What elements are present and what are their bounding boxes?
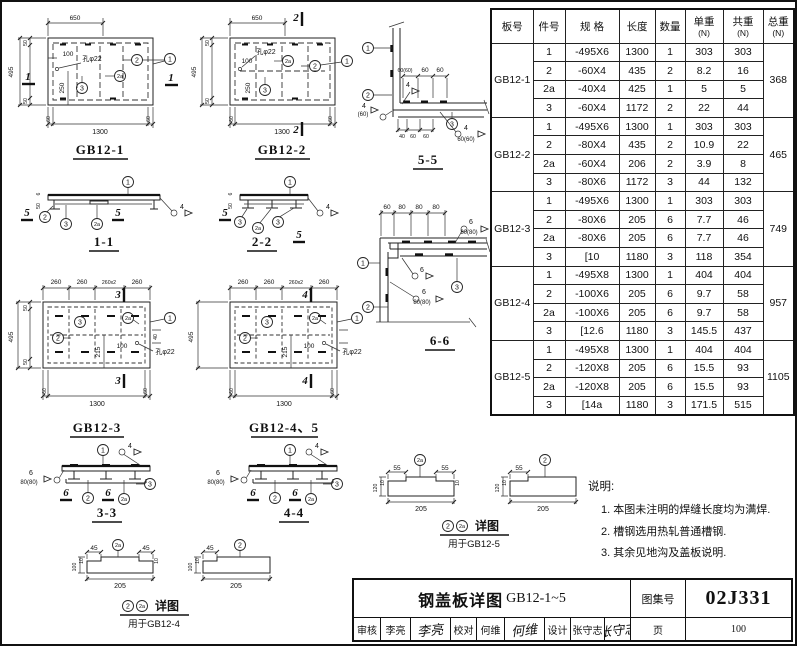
reviewer-label: 审核 bbox=[354, 618, 380, 640]
svg-text:215: 215 bbox=[95, 346, 102, 357]
svg-text:60: 60 bbox=[423, 134, 429, 140]
weld-mark: 680(80) bbox=[455, 219, 488, 243]
fig-6-6: 60 80 80 80 680(80) 6 680(80) 1 2 3 6-6 bbox=[358, 204, 491, 350]
part-bubble: 3 bbox=[235, 209, 248, 228]
svg-text:2a: 2a bbox=[255, 226, 261, 232]
svg-text:1: 1 bbox=[168, 72, 174, 84]
svg-text:2a: 2a bbox=[312, 316, 318, 322]
svg-text:55: 55 bbox=[515, 465, 523, 472]
part-bubble: 2 bbox=[540, 455, 551, 478]
svg-text:3: 3 bbox=[114, 289, 121, 301]
figure-title: 4-4 bbox=[284, 505, 304, 520]
hole-label: 孔φ22 bbox=[342, 348, 361, 356]
svg-text:2a: 2a bbox=[285, 59, 291, 65]
part-bubble: 3 bbox=[323, 479, 343, 490]
svg-text:2a: 2a bbox=[115, 543, 121, 549]
table-row: GB12-21-495X613001303303465 bbox=[491, 117, 794, 136]
svg-text:2: 2 bbox=[366, 305, 370, 312]
svg-text:1: 1 bbox=[168, 57, 172, 64]
svg-text:6: 6 bbox=[36, 192, 42, 195]
part-bubble: 2a bbox=[415, 455, 426, 478]
col-header: 共重(N) bbox=[723, 9, 763, 43]
designer-label: 设计 bbox=[544, 618, 570, 640]
svg-text:1: 1 bbox=[101, 448, 105, 455]
table-row: 2-80X620567.746 bbox=[491, 210, 794, 229]
svg-text:650: 650 bbox=[252, 15, 263, 22]
svg-text:10: 10 bbox=[154, 558, 160, 564]
weld-mark: 4 bbox=[402, 82, 419, 104]
fig-gb12-3-plan: 260 260 260x2 260 495 50 50 40 215 100 孔… bbox=[8, 279, 176, 437]
svg-text:用于GB12-4: 用于GB12-4 bbox=[128, 619, 180, 630]
svg-text:495: 495 bbox=[188, 331, 195, 342]
part-bubble: 1 bbox=[358, 258, 381, 269]
section-mark-1: 1 bbox=[165, 72, 178, 85]
svg-text:5: 5 bbox=[296, 229, 302, 241]
svg-text:5: 5 bbox=[24, 207, 30, 219]
svg-text:4: 4 bbox=[301, 375, 308, 387]
part-bubble: 2 bbox=[270, 480, 281, 504]
part-bubble: 2a bbox=[274, 56, 294, 67]
svg-text:3: 3 bbox=[265, 320, 269, 327]
table-row: 2a-60X420623.98 bbox=[491, 155, 794, 174]
svg-text:1300: 1300 bbox=[92, 129, 108, 136]
weld-mark: 4 bbox=[306, 443, 328, 465]
part-bubble: 1 bbox=[285, 177, 296, 195]
figure-title: 3-3 bbox=[97, 505, 117, 520]
svg-text:5: 5 bbox=[115, 207, 121, 219]
weld-mark: 4 bbox=[308, 198, 338, 216]
svg-text:100: 100 bbox=[117, 343, 128, 350]
svg-text:4: 4 bbox=[315, 443, 319, 450]
section-mark-5: 5 bbox=[112, 207, 124, 220]
table-row: 2-80X4435210.922 bbox=[491, 136, 794, 155]
part-bubble: 3 bbox=[136, 479, 156, 490]
svg-text:205: 205 bbox=[415, 506, 427, 513]
svg-text:4: 4 bbox=[362, 103, 366, 110]
part-bubble: 2a bbox=[119, 480, 130, 505]
svg-text:80(80): 80(80) bbox=[20, 480, 37, 486]
part-bubble: 3 bbox=[61, 205, 72, 230]
svg-text:1: 1 bbox=[355, 316, 359, 323]
svg-text:50: 50 bbox=[23, 305, 29, 311]
detail-caption: 2 2a 详图 用于GB12-4 bbox=[120, 598, 189, 630]
svg-text:60: 60 bbox=[46, 116, 52, 122]
col-header: 板号 bbox=[491, 9, 533, 43]
svg-text:详图: 详图 bbox=[475, 518, 499, 533]
svg-text:用于GB12-5: 用于GB12-5 bbox=[448, 539, 500, 550]
weld-mark: 4 bbox=[119, 443, 141, 465]
designer-name: 张守志 bbox=[570, 618, 604, 640]
section-mark-4: 4 bbox=[301, 374, 311, 388]
part-bubble: 1 bbox=[342, 56, 353, 67]
svg-text:6: 6 bbox=[250, 487, 256, 499]
svg-text:120: 120 bbox=[373, 484, 379, 493]
svg-text:2a: 2a bbox=[94, 222, 100, 228]
part-bubble: 1 bbox=[285, 445, 296, 465]
part-bubble: 2 bbox=[235, 540, 246, 558]
svg-text:60: 60 bbox=[328, 116, 334, 122]
svg-text:1300: 1300 bbox=[274, 129, 290, 136]
section-mark-5: 5 bbox=[293, 229, 305, 242]
svg-text:80(80): 80(80) bbox=[460, 230, 477, 236]
part-bubble: 2 bbox=[123, 55, 165, 66]
table-row: 2-120X8205615.593 bbox=[491, 359, 794, 378]
svg-text:3: 3 bbox=[238, 220, 242, 227]
section-mark-6: 6 bbox=[60, 487, 72, 500]
table-row: GB12-11-495X613001303303368 bbox=[491, 43, 794, 62]
svg-text:215: 215 bbox=[282, 346, 289, 357]
note-item: 1. 本图未注明的焊缝长度均为满焊. bbox=[588, 500, 790, 521]
svg-text:2: 2 bbox=[56, 336, 60, 343]
figure-title: GB12-2 bbox=[258, 142, 307, 157]
part-bubble: 2 bbox=[83, 480, 94, 504]
note-item: 3. 其余见地沟及盖板说明. bbox=[588, 543, 790, 564]
svg-text:80(80): 80(80) bbox=[413, 300, 430, 306]
page-number: 100 bbox=[685, 618, 791, 640]
part-bubble: 2a bbox=[113, 540, 124, 558]
atlas-number: 02J331 bbox=[685, 580, 791, 617]
part-bubble: 2a bbox=[123, 313, 140, 325]
svg-text:45: 45 bbox=[206, 545, 214, 552]
svg-text:4: 4 bbox=[406, 82, 410, 89]
section-mark-6: 6 bbox=[247, 487, 259, 500]
svg-text:495: 495 bbox=[8, 66, 15, 77]
figure-title: GB12-1 bbox=[76, 142, 125, 157]
svg-text:60: 60 bbox=[146, 116, 152, 122]
title-block: 钢盖板详图GB12-1~5 图集号 02J331 审核 李亮 李亮 校对 何维 … bbox=[352, 578, 793, 642]
sheet-title: 钢盖板详图GB12-1~5 bbox=[354, 580, 630, 617]
svg-text:260x2: 260x2 bbox=[289, 280, 303, 286]
table-row: 2a-100X620569.758 bbox=[491, 303, 794, 322]
part-bubble: 2 bbox=[363, 90, 393, 101]
svg-text:60: 60 bbox=[143, 388, 149, 394]
svg-text:3: 3 bbox=[455, 285, 459, 292]
svg-text:80(80): 80(80) bbox=[207, 480, 224, 486]
fig-1-1: 6 50 1 2 3 2a 5 5 4 1-1 bbox=[21, 177, 192, 252]
table-row: 2a-40X4425155 bbox=[491, 80, 794, 99]
svg-text:50: 50 bbox=[23, 98, 29, 104]
fig-3-3: 680(80) 1 4 6 6 2 2a 3 3-3 bbox=[20, 443, 155, 522]
checker-label: 校对 bbox=[450, 618, 476, 640]
checker-name: 何维 bbox=[476, 618, 504, 640]
figure-title: 2-2 bbox=[252, 234, 272, 249]
col-header: 数量 bbox=[655, 9, 685, 43]
svg-text:3: 3 bbox=[276, 220, 280, 227]
part-bubble: 2 bbox=[240, 333, 259, 344]
svg-text:2: 2 bbox=[43, 215, 47, 222]
svg-text:260: 260 bbox=[264, 279, 275, 286]
svg-text:6: 6 bbox=[292, 487, 298, 499]
part-bubble: 2a bbox=[306, 480, 317, 505]
svg-text:6: 6 bbox=[422, 289, 426, 296]
notes-block: 说明: 1. 本图未注明的焊缝长度均为满焊. 2. 槽钢选用热轧普通槽钢. 3.… bbox=[588, 476, 790, 565]
svg-text:260x2: 260x2 bbox=[102, 280, 116, 286]
hole-label: 孔φ22 bbox=[256, 48, 275, 56]
page-label: 页 bbox=[630, 618, 685, 640]
parts-table: 板号 件号 规 格 长度 数量 单重(N) 共重(N) 总重(N) GB12-1… bbox=[490, 8, 795, 416]
part-bubble: 1 bbox=[337, 313, 363, 324]
atlas-label: 图集号 bbox=[630, 580, 685, 617]
part-bubble: 2a bbox=[310, 313, 327, 325]
table-row: 2-100X620569.758 bbox=[491, 285, 794, 304]
designer-signature: 张守志 bbox=[604, 618, 630, 640]
svg-text:205: 205 bbox=[114, 583, 126, 590]
svg-text:45: 45 bbox=[90, 545, 98, 552]
figure-title: 1-1 bbox=[94, 234, 114, 249]
part-bubble: 2 bbox=[363, 302, 389, 313]
table-row: 2a-120X8205615.593 bbox=[491, 378, 794, 397]
svg-text:50: 50 bbox=[23, 40, 29, 46]
svg-text:2a: 2a bbox=[139, 604, 145, 610]
svg-text:260: 260 bbox=[238, 279, 249, 286]
svg-text:4: 4 bbox=[464, 125, 468, 132]
svg-text:60: 60 bbox=[229, 116, 235, 122]
svg-text:2: 2 bbox=[86, 496, 90, 503]
svg-text:2: 2 bbox=[292, 124, 299, 136]
svg-text:60: 60 bbox=[330, 388, 336, 394]
hole-label: 孔φ22 bbox=[82, 55, 101, 63]
part-bubble: 3 bbox=[77, 76, 88, 94]
svg-text:3: 3 bbox=[450, 122, 454, 129]
part-bubble: 1 bbox=[153, 54, 176, 65]
svg-text:55: 55 bbox=[441, 465, 449, 472]
svg-text:4: 4 bbox=[128, 443, 132, 450]
svg-text:100: 100 bbox=[63, 51, 74, 58]
svg-text:40: 40 bbox=[153, 334, 159, 340]
svg-text:6: 6 bbox=[29, 470, 33, 477]
part-bubble: 1 bbox=[363, 43, 393, 54]
svg-text:100: 100 bbox=[72, 563, 78, 572]
weld-mark: 680(80) bbox=[207, 470, 251, 486]
weld-mark: 4 bbox=[160, 198, 192, 216]
svg-text:60: 60 bbox=[436, 67, 444, 74]
svg-text:1: 1 bbox=[345, 59, 349, 66]
fig-detail-gb12-4: 45 45 10 10 100 205 2a 45 10 100 205 2 2… bbox=[72, 540, 272, 631]
detail-caption: 2 2a 详图 用于GB12-5 bbox=[440, 518, 509, 550]
table-row: 3[14a11803171.5515 bbox=[491, 396, 794, 415]
section-mark-5: 5 bbox=[21, 207, 33, 220]
section-mark-6: 6 bbox=[289, 487, 301, 500]
svg-text:45: 45 bbox=[142, 545, 150, 552]
svg-text:10: 10 bbox=[195, 558, 201, 564]
svg-text:3: 3 bbox=[263, 88, 267, 95]
table-row: 3-80X61172344132 bbox=[491, 173, 794, 192]
svg-text:60: 60 bbox=[229, 388, 235, 394]
table-row: 2a-80X620567.746 bbox=[491, 229, 794, 248]
figure-title: GB12-4、5 bbox=[249, 420, 319, 435]
part-bubble: 1 bbox=[123, 177, 134, 195]
svg-text:2a: 2a bbox=[459, 524, 465, 530]
part-bubble: 3 bbox=[447, 112, 458, 130]
svg-text:3: 3 bbox=[335, 482, 339, 489]
fig-detail-gb12-5: 55 55 10 10 120 205 2a 55 10 120 205 2 2… bbox=[373, 455, 578, 551]
part-bubble: 2 bbox=[53, 333, 72, 344]
svg-text:5: 5 bbox=[222, 207, 228, 219]
svg-text:260: 260 bbox=[77, 279, 88, 286]
table-row: 2-60X443528.216 bbox=[491, 62, 794, 81]
svg-text:55: 55 bbox=[393, 465, 401, 472]
part-bubble: 2a bbox=[253, 209, 272, 234]
svg-text:10: 10 bbox=[455, 480, 461, 486]
svg-text:4: 4 bbox=[326, 204, 330, 211]
svg-text:650: 650 bbox=[70, 15, 81, 22]
svg-text:495: 495 bbox=[191, 66, 198, 77]
svg-text:(60): (60) bbox=[358, 112, 369, 118]
svg-text:3: 3 bbox=[114, 375, 121, 387]
svg-text:60(60): 60(60) bbox=[457, 137, 474, 143]
figure-title: GB12-3 bbox=[73, 420, 122, 435]
svg-text:1: 1 bbox=[168, 316, 172, 323]
section-mark-1: 1 bbox=[22, 71, 35, 84]
table-row: 3-60X4117222244 bbox=[491, 99, 794, 118]
svg-text:60: 60 bbox=[383, 204, 391, 211]
fig-5-5: 60(60) 60 60 40 60 60 4(60) 4 460(60) 1 … bbox=[358, 22, 489, 169]
svg-text:120: 120 bbox=[495, 484, 501, 493]
svg-text:6: 6 bbox=[216, 470, 220, 477]
svg-text:详图: 详图 bbox=[155, 598, 179, 613]
svg-text:2: 2 bbox=[238, 543, 242, 550]
svg-text:80: 80 bbox=[398, 204, 406, 211]
svg-text:1: 1 bbox=[288, 448, 292, 455]
svg-text:60: 60 bbox=[42, 388, 48, 394]
svg-text:3: 3 bbox=[80, 86, 84, 93]
svg-text:40: 40 bbox=[399, 134, 405, 140]
svg-text:50: 50 bbox=[205, 98, 211, 104]
part-bubble: 2a bbox=[105, 71, 126, 82]
weld-mark: 4(60) bbox=[358, 103, 392, 120]
table-row: GB12-41-495X813001404404957 bbox=[491, 266, 794, 285]
part-bubble: 3 bbox=[262, 317, 273, 328]
col-header: 长度 bbox=[619, 9, 655, 43]
section-mark-3: 3 bbox=[114, 374, 124, 388]
svg-text:205: 205 bbox=[537, 506, 549, 513]
part-bubble: 3 bbox=[260, 77, 271, 96]
svg-text:100: 100 bbox=[188, 563, 194, 572]
svg-text:2a: 2a bbox=[417, 458, 423, 464]
table-row: GB12-51-495X8130014044041105 bbox=[491, 341, 794, 360]
svg-text:1: 1 bbox=[126, 180, 130, 187]
svg-text:495: 495 bbox=[8, 331, 15, 342]
section-mark-6: 6 bbox=[102, 487, 114, 500]
svg-text:2: 2 bbox=[366, 93, 370, 100]
col-header: 规 格 bbox=[565, 9, 619, 43]
col-header: 件号 bbox=[533, 9, 565, 43]
fig-2-2: 6 50 1 3 2a 3 5 5 4 2-2 bbox=[219, 177, 338, 252]
part-bubble: 1 bbox=[150, 313, 176, 324]
reviewer-signature: 李亮 bbox=[410, 618, 450, 640]
checker-signature: 何维 bbox=[504, 618, 544, 640]
svg-text:2a: 2a bbox=[121, 497, 127, 503]
svg-text:2a: 2a bbox=[117, 74, 123, 80]
col-header: 单重(N) bbox=[685, 9, 723, 43]
svg-text:60: 60 bbox=[421, 67, 429, 74]
svg-text:1: 1 bbox=[25, 71, 31, 83]
svg-text:260: 260 bbox=[132, 279, 143, 286]
svg-text:260: 260 bbox=[51, 279, 62, 286]
svg-text:205: 205 bbox=[230, 583, 242, 590]
svg-text:10: 10 bbox=[380, 480, 386, 486]
svg-text:50: 50 bbox=[23, 359, 29, 365]
table-row: GB12-31-495X613001303303749 bbox=[491, 192, 794, 211]
svg-text:50: 50 bbox=[205, 40, 211, 46]
svg-text:1: 1 bbox=[361, 261, 365, 268]
svg-text:100: 100 bbox=[304, 343, 315, 350]
table-row: 3[1011803118354 bbox=[491, 248, 794, 267]
svg-text:1300: 1300 bbox=[276, 401, 292, 408]
svg-text:3: 3 bbox=[64, 222, 68, 229]
note-item: 2. 槽钢选用热轧普通槽钢. bbox=[588, 522, 790, 543]
part-bubble: 3 bbox=[452, 258, 463, 293]
svg-text:4: 4 bbox=[301, 289, 308, 301]
svg-text:1300: 1300 bbox=[89, 401, 105, 408]
notes-title: 说明: bbox=[588, 476, 790, 498]
svg-text:2: 2 bbox=[273, 496, 277, 503]
svg-text:80: 80 bbox=[415, 204, 423, 211]
svg-text:80: 80 bbox=[432, 204, 440, 211]
svg-text:250: 250 bbox=[245, 82, 252, 93]
svg-text:60: 60 bbox=[410, 134, 416, 140]
svg-text:6: 6 bbox=[420, 267, 424, 274]
svg-text:2: 2 bbox=[135, 58, 139, 65]
part-bubble: 3 bbox=[75, 317, 86, 328]
fig-gb12-45-plan: 260 260 260x2 260 495 215 100 孔φ22 60 60… bbox=[188, 279, 363, 437]
svg-text:50: 50 bbox=[228, 203, 234, 209]
svg-text:2: 2 bbox=[292, 12, 299, 24]
svg-text:6: 6 bbox=[469, 219, 473, 226]
hole-label: 孔φ22 bbox=[155, 348, 174, 356]
svg-text:2: 2 bbox=[313, 64, 317, 71]
part-bubble: 2a bbox=[92, 205, 103, 230]
section-mark-2: 2 bbox=[292, 12, 302, 26]
weld-mark: 6 bbox=[402, 258, 433, 279]
fig-gb12-1-plan: 650 1300 495 50 50 60 60 100 250 孔φ22 3 … bbox=[8, 15, 178, 159]
svg-text:1: 1 bbox=[288, 180, 292, 187]
svg-text:2a: 2a bbox=[125, 316, 131, 322]
svg-text:6: 6 bbox=[228, 192, 234, 195]
fig-4-4: 680(80) 1 4 6 6 2 2a 3 4-4 bbox=[207, 443, 342, 522]
svg-text:10: 10 bbox=[79, 558, 85, 564]
svg-text:1: 1 bbox=[366, 46, 370, 53]
svg-text:2: 2 bbox=[126, 604, 130, 611]
weld-mark: 680(80) bbox=[20, 470, 64, 486]
svg-text:4: 4 bbox=[180, 204, 184, 211]
table-row: 3[12.611803145.5437 bbox=[491, 322, 794, 341]
svg-text:60(60): 60(60) bbox=[398, 68, 413, 74]
svg-text:3: 3 bbox=[148, 482, 152, 489]
svg-text:3: 3 bbox=[78, 320, 82, 327]
table-header-row: 板号 件号 规 格 长度 数量 单重(N) 共重(N) 总重(N) bbox=[491, 9, 794, 43]
figure-title: 6-6 bbox=[430, 333, 450, 348]
svg-text:6: 6 bbox=[105, 487, 111, 499]
svg-text:10: 10 bbox=[502, 480, 508, 486]
col-header: 总重(N) bbox=[763, 9, 794, 43]
reviewer-name: 李亮 bbox=[380, 618, 410, 640]
drawing-sheet: 650 1300 495 50 50 60 60 100 250 孔φ22 3 … bbox=[0, 0, 797, 646]
svg-text:2a: 2a bbox=[308, 497, 314, 503]
svg-text:50: 50 bbox=[36, 203, 42, 209]
fig-gb12-2-plan: 650 1300 495 50 50 60 60 100 250 孔φ22 2 … bbox=[191, 12, 353, 159]
figure-title: 5-5 bbox=[418, 152, 438, 167]
svg-text:260: 260 bbox=[319, 279, 330, 286]
svg-text:6: 6 bbox=[63, 487, 69, 499]
svg-text:250: 250 bbox=[59, 82, 66, 93]
svg-text:2: 2 bbox=[243, 336, 247, 343]
weld-mark: 680(80) bbox=[390, 282, 443, 306]
part-bubble: 1 bbox=[98, 445, 109, 465]
svg-text:2: 2 bbox=[446, 524, 450, 531]
part-bubble: 3 bbox=[273, 208, 295, 228]
svg-text:2: 2 bbox=[543, 458, 547, 465]
